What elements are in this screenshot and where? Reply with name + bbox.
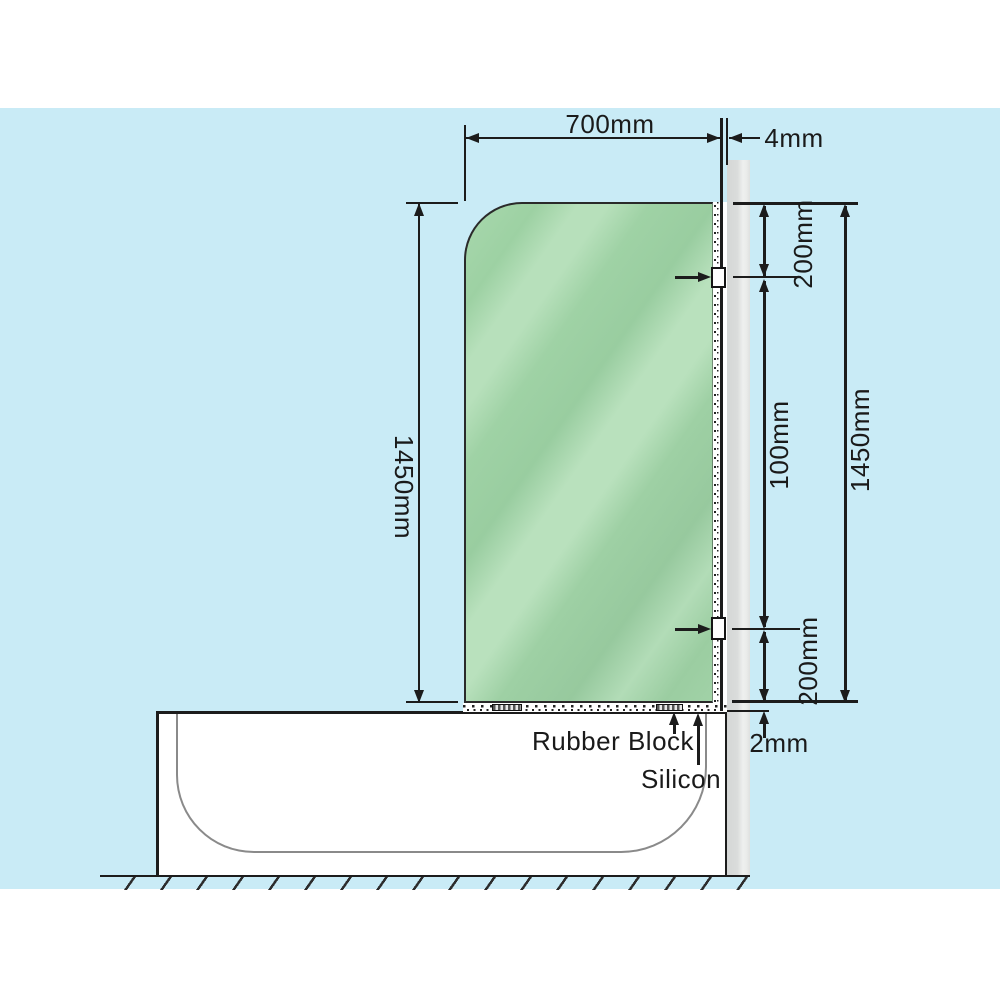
ground-hatching — [100, 877, 748, 890]
dim-height-right-arrow-down-icon — [840, 690, 850, 703]
dim-height-left-arrow-down-icon — [414, 690, 424, 703]
dim-height-left-label: 1450mm — [391, 435, 417, 539]
dim-200-top-label: 200mm — [790, 199, 816, 288]
bracket-bottom-arrow-icon — [698, 624, 711, 634]
dim-200-bottom-arrow-down-icon — [759, 689, 769, 702]
dim-height-left-arrow-up-icon — [414, 203, 424, 216]
wall — [727, 160, 750, 877]
bathtub-right-edge — [725, 713, 728, 877]
bracket-bottom — [711, 617, 726, 640]
bracket-top-arrow-stem — [675, 276, 699, 279]
dim-100-arrow-down-icon — [759, 616, 769, 629]
silicon-arrow-icon — [693, 713, 703, 726]
dim-gap-arrow-icon — [729, 133, 742, 143]
bracket-top-arrow-icon — [698, 272, 711, 282]
dim-200-bottom-label: 200mm — [795, 616, 821, 705]
rubber-block-label: Rubber Block — [532, 728, 694, 754]
silicon-label: Silicon — [641, 766, 721, 792]
dim-2mm-arrow-icon — [759, 711, 769, 724]
dim-height-right-label: 1450mm — [847, 388, 873, 492]
silicon-arrow-stem — [697, 724, 700, 765]
dim-width-label: 700mm — [565, 111, 654, 137]
dim-width-arrow-left-icon — [466, 133, 479, 143]
dim-gap-label: 4mm — [764, 125, 823, 151]
dim-height-right-arrow-up-icon — [840, 204, 850, 217]
bracket-top — [711, 267, 726, 288]
wall-face-extension-line — [726, 118, 728, 165]
dim-width-arrow-right-icon — [707, 133, 720, 143]
rubber-block-arrow-icon — [669, 712, 679, 725]
dim-200-bottom-arrow-up-icon — [759, 630, 769, 643]
dim-2mm-label: 2mm — [749, 730, 808, 756]
dim-100-arrow-up-icon — [759, 279, 769, 292]
dim-100-label: 100mm — [766, 400, 792, 489]
bracket-bottom-arrow-stem — [675, 628, 699, 631]
dim-200-top-arrow-up-icon — [759, 204, 769, 217]
rubber-block-right — [656, 704, 683, 711]
dim-200-top-arrow-down-icon — [759, 264, 769, 277]
bathtub-left-edge — [156, 713, 159, 877]
rubber-block-left — [492, 704, 522, 711]
diagram-canvas: 700mm 4mm 1450mm 200mm 100mm 200mm 1450m… — [0, 0, 1000, 1000]
